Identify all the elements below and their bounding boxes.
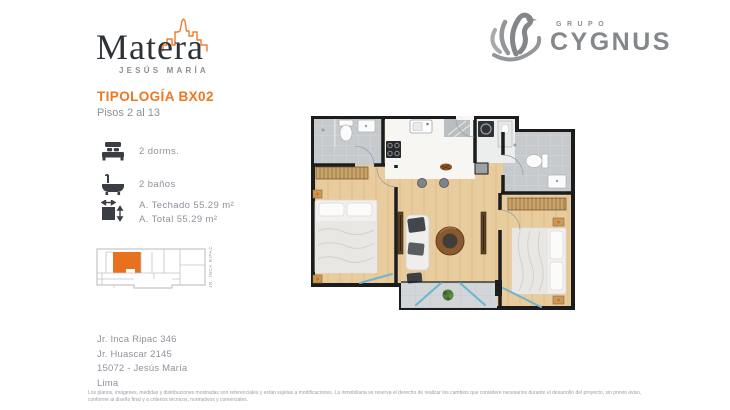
feature-bedrooms: 2 dorms.	[100, 142, 179, 161]
feature-bathrooms: 2 baños	[100, 174, 176, 195]
brand-name: Matera	[96, 26, 204, 68]
feature-bedrooms-label: 2 dorms.	[139, 146, 179, 157]
area-icon	[100, 200, 126, 224]
typology-title: TIPOLOGÍA BX02	[97, 89, 214, 104]
feature-area-techado-label: A. Techado 55.29 m²	[139, 200, 234, 211]
floorplan-image	[310, 115, 576, 311]
cygnus-swan-icon	[486, 8, 548, 66]
bathtub-icon	[100, 174, 126, 195]
address-line-1: Jr. Inca Ripac 346	[97, 333, 187, 348]
developer-name: CYGNUS	[550, 28, 672, 57]
bed-icon	[100, 142, 126, 161]
address-line-2: Jr. Huascar 2145	[97, 348, 187, 363]
typology-floors: Pisos 2 al 13	[97, 107, 160, 119]
cygnus-logo: GRUPO CYGNUS	[486, 8, 656, 68]
keyplan-image	[94, 243, 208, 291]
developer-group-label: GRUPO	[556, 21, 609, 28]
street-label: JR. INCA RIPAC	[208, 243, 220, 291]
feature-areas: A. Techado 55.29 m² A. Total 55.29 m²	[100, 200, 234, 225]
brand-district: JESÚS MARÍA	[119, 66, 209, 75]
feature-area-total-label: A. Total 55.29 m²	[139, 214, 234, 225]
flyer-page: Matera JESÚS MARÍA GRUPO CYGNUS TIPOLOGÍ…	[0, 0, 730, 410]
disclaimer-text: Los planos, imágenes, medidas y distribu…	[88, 390, 650, 404]
feature-bathrooms-label: 2 baños	[139, 179, 176, 190]
address-line-3: 15072 - Jesús María	[97, 362, 187, 377]
address-block: Jr. Inca Ripac 346 Jr. Huascar 2145 1507…	[97, 333, 187, 392]
matera-logo: Matera JESÚS MARÍA	[96, 14, 226, 84]
